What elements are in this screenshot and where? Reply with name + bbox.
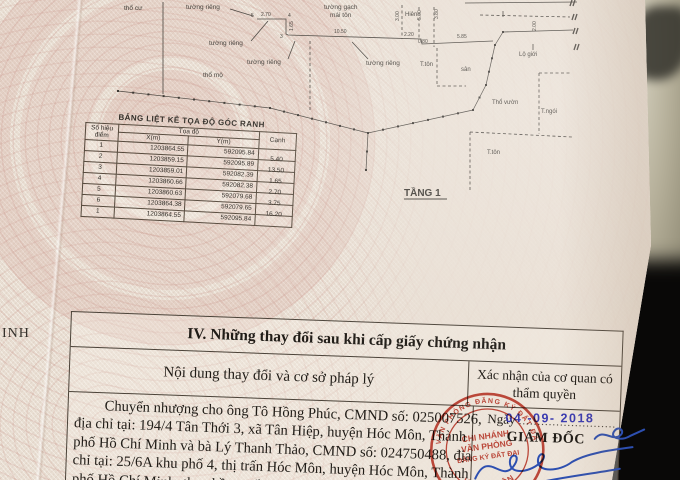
coordinate-table: BẢNG LIỆT KÊ TỌA ĐỘ GÓC RANH Số hiệu điể… (80, 111, 297, 228)
boundary-point (283, 111, 285, 113)
road-hatch-marks (570, 0, 579, 50)
boundary-point (353, 128, 355, 130)
boundary-point (223, 102, 225, 104)
boundary-point (366, 151, 368, 153)
plan-label: thổ mộ (203, 71, 223, 79)
boundary-point (339, 125, 341, 127)
plan-label: tường riêng (366, 60, 400, 67)
plan-label: 5.00 (417, 10, 423, 20)
section-iv-table: IV. Những thay đổi sau khi cấp giấy chứn… (64, 311, 624, 480)
plan-label: 0.80 (418, 39, 428, 45)
plan-label: T.tôn (420, 62, 433, 68)
boundary-point (442, 116, 444, 118)
boundary-point (412, 122, 414, 124)
boundary-point (472, 109, 474, 111)
boundary-point (147, 93, 149, 95)
plan-label: Lộ giới (519, 52, 537, 58)
plan-label: 5 (251, 13, 254, 19)
plan-label: T.ngói (541, 109, 557, 115)
boundary-line (495, 32, 503, 45)
boundary-point (479, 97, 481, 99)
boundary-point (488, 71, 490, 73)
boundary-point (254, 105, 256, 107)
plan-label: tường riêng (209, 40, 243, 47)
plan-label: Hiên (405, 12, 417, 18)
boundary-point (325, 121, 327, 123)
boundary-point (485, 84, 487, 86)
plan-label: 3 (280, 34, 283, 40)
plan-label: 2.70 (261, 12, 271, 18)
plan-label: thổ cư (124, 4, 143, 12)
plan-label: 3.00 (395, 11, 401, 21)
col-header-edge: Cạnh (258, 132, 296, 151)
authority-cell: Ngày .......................... 04 -09- … (469, 406, 619, 480)
boundary-point (491, 57, 493, 59)
boundary-point (178, 97, 180, 99)
boundary-line (486, 45, 495, 85)
plan-label: tường riêng (247, 59, 281, 66)
boundary-point (269, 107, 271, 109)
boundary-point (502, 31, 504, 33)
boundary-point (117, 90, 119, 92)
plan-label: sân (461, 67, 471, 73)
plan-label: 1.65 (289, 21, 295, 31)
plan-label: 10.50 (334, 29, 347, 35)
boundary-point (427, 119, 429, 121)
stamp-bottom-text: H.HÓC MÔN (461, 469, 517, 480)
boundary-point (367, 132, 369, 134)
svg-text:H.HÓC MÔN: H.HÓC MÔN (461, 469, 517, 480)
boundary-point (457, 112, 459, 114)
col-header-point: Số hiệu điểm (85, 123, 119, 142)
plan-label: 5.85 (457, 34, 467, 40)
boundary-point (311, 118, 313, 120)
plan-label: T.tôn (487, 150, 500, 156)
plan-label: 2.00 (532, 21, 538, 31)
boundary-point (382, 129, 384, 131)
page-edge-text: INH (2, 326, 30, 342)
plan-label: tường gạch (324, 4, 358, 11)
boundary-point (239, 104, 241, 106)
plan-dashed-lines (310, 5, 572, 192)
plan-label: tường riêng (186, 4, 220, 11)
plan-label: 3.80 (434, 9, 440, 19)
plan-label: 2.20 (404, 32, 414, 38)
boundary-point (132, 92, 134, 94)
plan-label: Thổ vườn (492, 99, 518, 106)
plan-label: mái tôn (330, 12, 352, 19)
boundary-point (297, 114, 299, 116)
boundary-point (494, 44, 496, 46)
boundary-point (208, 100, 210, 102)
transfer-note-text: Chuyển nhượng cho ông Tô Hồng Phúc, CMND… (65, 392, 474, 480)
plan-label: 4 (288, 13, 291, 19)
plan-label: TẦNG 1 (404, 186, 441, 199)
boundary-point (193, 99, 195, 101)
coord-cell: 1 (81, 205, 114, 218)
boundary-point (163, 95, 165, 97)
official-stamp: VĂN PHÒNG ĐĂNG KÝ ĐẤT ĐAI H.HÓC MÔN CHI … (418, 381, 556, 480)
boundary-point (365, 169, 367, 171)
boundary-point (397, 125, 399, 127)
photo-frame: INH thổ cưtường riêngtường gạch (0, 0, 680, 480)
